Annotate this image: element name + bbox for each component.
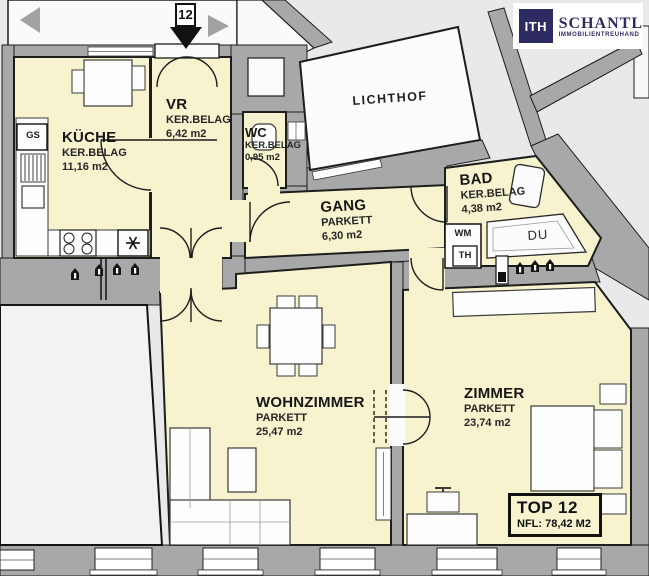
sink-drainer-icon bbox=[21, 154, 45, 182]
shaft-box bbox=[248, 58, 284, 96]
room-area: 6,30 m2 bbox=[322, 227, 374, 244]
gang-label: GANG PARKETT 6,30 m2 bbox=[320, 197, 373, 244]
unit-name: TOP 12 bbox=[517, 498, 591, 518]
side-table bbox=[228, 448, 256, 492]
wall-zimmer-right bbox=[631, 328, 649, 545]
brand-name: SCHANTL bbox=[559, 15, 643, 32]
dryer-label: TH bbox=[447, 250, 483, 261]
room-name: ZIMMER bbox=[464, 386, 524, 402]
vr-wohnzimmer-opening bbox=[160, 254, 222, 293]
room-name: VR bbox=[166, 97, 231, 113]
room-floor: PARKETT bbox=[321, 213, 373, 230]
brand-text: SCHANTL IMMOBILIENTREUHAND bbox=[559, 15, 643, 38]
gang-wc-opening bbox=[248, 184, 280, 202]
stair-hall bbox=[8, 0, 237, 47]
freezer-star-icon bbox=[118, 230, 148, 256]
dishwasher-label: GS bbox=[21, 130, 45, 141]
room-area: 0,95 m2 bbox=[245, 152, 301, 164]
kueche-vr-opening bbox=[146, 138, 156, 192]
kueche-label: KÜCHE KER.BELAG 11,16 m2 bbox=[62, 130, 127, 174]
unit-net-area: NFL: 78,42 M2 bbox=[517, 518, 591, 531]
floor-plan: 12 KÜCHE KER.BELAG 11,16 m2 VR KER.BELAG… bbox=[0, 0, 649, 576]
wohnzimmer-label: WOHNZIMMER PARKETT 25,47 m2 bbox=[256, 395, 365, 439]
sink-icon bbox=[22, 186, 44, 208]
brand-logo: ITH SCHANTL IMMOBILIENTREUHAND bbox=[513, 3, 643, 49]
room-area: 6,42 m2 bbox=[166, 127, 231, 141]
gang-zimmer-opening bbox=[409, 248, 445, 291]
room-name: WC bbox=[245, 126, 301, 140]
wc-label: WC KER.BELAG 0,95 m2 bbox=[245, 126, 301, 164]
wardrobe bbox=[453, 288, 596, 317]
wohn-zimmer-opening bbox=[389, 384, 405, 446]
wall-under-kitchen bbox=[0, 258, 162, 305]
unit-number-marker: 12 bbox=[175, 3, 196, 27]
room-floor: PARKETT bbox=[256, 411, 365, 425]
shower-label: DU bbox=[527, 227, 549, 243]
room-floor: KER.BELAG bbox=[245, 140, 301, 152]
floor-plan-drawing bbox=[0, 0, 649, 576]
washer-label: WM bbox=[445, 228, 481, 239]
vr-gang-opening bbox=[229, 200, 247, 242]
room-area: 11,16 m2 bbox=[62, 160, 127, 174]
unit-summary-box: TOP 12 NFL: 78,42 M2 bbox=[508, 493, 602, 537]
brand-monogram-icon: ITH bbox=[519, 9, 553, 43]
neighbor-room bbox=[0, 305, 162, 545]
zimmer-label: ZIMMER PARKETT 23,74 m2 bbox=[464, 386, 524, 430]
radiator bbox=[376, 448, 391, 520]
room-area: 23,74 m2 bbox=[464, 416, 524, 430]
bad-label: BAD KER.BELAG 4,38 m2 bbox=[459, 168, 527, 216]
vr-label: VR KER.BELAG 6,42 m2 bbox=[166, 97, 231, 141]
room-area: 25,47 m2 bbox=[256, 425, 365, 439]
room-floor: KER.BELAG bbox=[166, 113, 231, 127]
room-name: KÜCHE bbox=[62, 130, 127, 146]
room-name: WOHNZIMMER bbox=[256, 395, 365, 411]
room-floor: PARKETT bbox=[464, 402, 524, 416]
stove-icon bbox=[60, 230, 96, 256]
brand-tagline: IMMOBILIENTREUHAND bbox=[559, 32, 643, 38]
room-floor: KER.BELAG bbox=[62, 146, 127, 160]
